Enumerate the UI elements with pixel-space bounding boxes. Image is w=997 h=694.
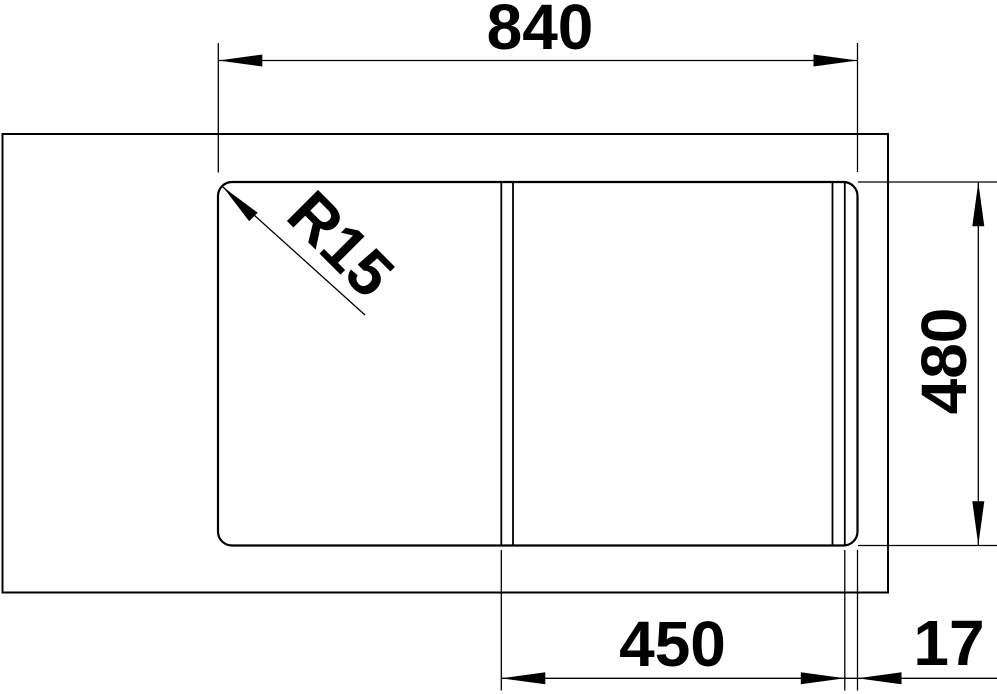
bowl-width-label: 450 xyxy=(619,608,726,680)
corner-radius-callout: R15 xyxy=(223,177,408,315)
arrowhead-right-icon xyxy=(801,672,845,684)
sink-outlines xyxy=(3,134,889,593)
arrowhead-left-icon xyxy=(218,55,262,67)
arrowhead-gap-left-icon xyxy=(858,672,902,684)
overall-depth-label: 480 xyxy=(908,308,980,415)
dimension-overall-depth: 480 xyxy=(858,182,997,546)
arrowhead-left-icon xyxy=(501,672,545,684)
arrowhead-right-icon xyxy=(814,55,858,67)
corner-radius-label: R15 xyxy=(274,177,408,311)
sink-technical-drawing: 840 480 450 17 R15 xyxy=(0,0,997,694)
outer-rim-outline xyxy=(3,134,889,593)
arrowhead-down-icon xyxy=(972,501,984,545)
drawing-svg: 840 480 450 17 R15 xyxy=(0,0,997,694)
dimension-overall-width: 840 xyxy=(218,0,857,173)
dimension-bowl-width-and-edge-gap: 450 17 xyxy=(501,550,997,691)
overall-width-label: 840 xyxy=(487,0,594,63)
leader-arrowhead-icon xyxy=(223,187,258,221)
arrowhead-up-icon xyxy=(972,182,984,226)
edge-gap-label: 17 xyxy=(913,607,984,679)
